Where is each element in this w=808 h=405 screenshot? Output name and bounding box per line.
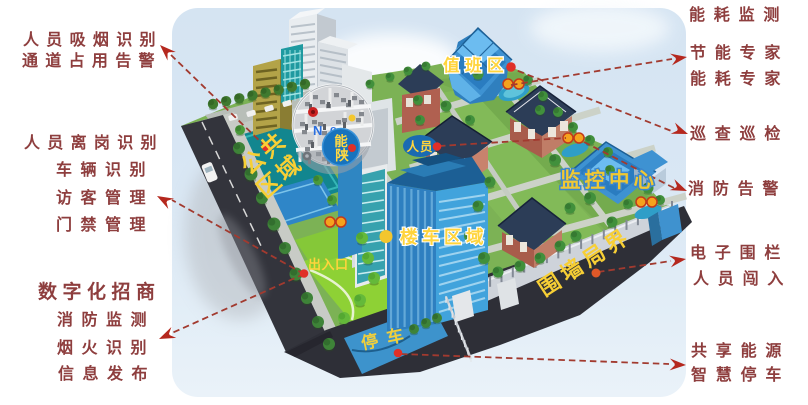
svg-text:N: N bbox=[313, 123, 322, 138]
svg-text:能: 能 bbox=[334, 133, 348, 149]
svg-text:陕: 陕 bbox=[335, 147, 349, 163]
svg-text:值班区: 值班区 bbox=[443, 55, 509, 75]
svg-text:监控中心: 监控中心 bbox=[560, 168, 658, 192]
svg-text:人员: 人员 bbox=[406, 139, 433, 154]
svg-text:楼车区域: 楼车区域 bbox=[400, 227, 488, 247]
svg-text:出入口: 出入口 bbox=[308, 257, 349, 272]
